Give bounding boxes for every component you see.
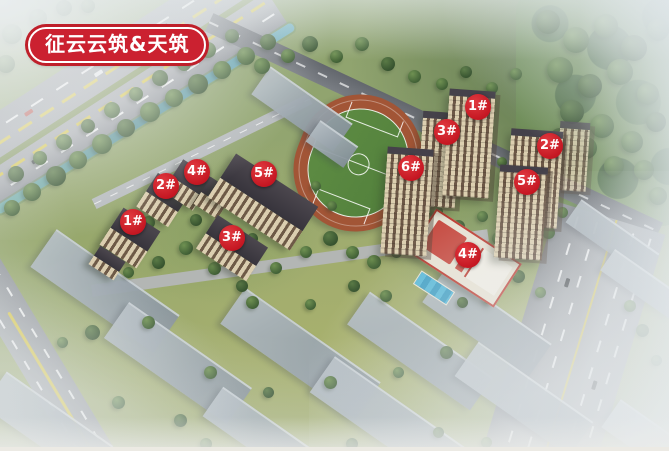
tree-layer: [0, 0, 669, 451]
tree: [23, 183, 41, 201]
building-label-east-6: 6#: [398, 155, 424, 181]
tree: [56, 134, 72, 150]
tree: [56, 0, 72, 16]
tree: [634, 160, 654, 180]
project-name-banner: 征云云筑&天筑: [28, 27, 206, 63]
aerial-site-plan-rendering: 1# 2# 4# 5# 3# 1# 3# 2# 6# 5# 4# 征云云筑&天筑: [0, 0, 669, 451]
tree: [165, 89, 183, 107]
tree: [477, 211, 488, 222]
building-label-west-2: 2#: [153, 173, 179, 199]
tree: [302, 36, 318, 52]
tree: [0, 55, 15, 73]
tree: [594, 14, 618, 38]
tree: [380, 290, 392, 302]
tree: [324, 376, 337, 389]
building-label-west-1: 1#: [120, 209, 146, 235]
tree: [535, 287, 546, 298]
tree: [246, 296, 259, 309]
tree: [590, 114, 614, 138]
tree: [636, 324, 649, 337]
tree: [547, 57, 573, 83]
tree: [129, 87, 143, 101]
tree: [647, 19, 669, 41]
tree: [213, 61, 231, 79]
building-label-west-3: 3#: [219, 225, 245, 251]
tree: [646, 112, 666, 132]
tree: [557, 207, 568, 218]
tree: [440, 346, 453, 359]
tree: [104, 102, 120, 118]
tree: [140, 102, 160, 122]
tree: [367, 255, 381, 269]
tree: [563, 27, 589, 53]
tree: [607, 59, 633, 85]
tree: [69, 151, 87, 169]
building-label-west-4: 4#: [184, 159, 210, 185]
tree: [260, 34, 276, 50]
tree: [81, 0, 95, 13]
tree: [305, 299, 316, 310]
tree: [8, 166, 24, 182]
tree: [300, 246, 312, 258]
tree: [348, 280, 360, 292]
tree: [81, 119, 95, 133]
tree: [604, 156, 624, 176]
tree: [649, 187, 667, 205]
building-label-east-1: 1#: [465, 94, 491, 120]
building-label-west-5: 5#: [251, 161, 277, 187]
tree: [152, 70, 168, 86]
tree: [85, 325, 100, 340]
tree: [33, 151, 47, 165]
tree: [327, 201, 337, 211]
tree: [578, 74, 602, 98]
tree: [225, 29, 239, 43]
tree: [190, 214, 202, 226]
tree: [29, 9, 47, 27]
tree: [355, 37, 369, 51]
tree: [621, 35, 647, 61]
tree: [408, 70, 421, 83]
tree: [254, 58, 270, 74]
building-label-east-3: 3#: [434, 119, 460, 145]
tree: [236, 280, 248, 292]
tree: [270, 262, 282, 274]
tree: [637, 83, 659, 105]
tree: [200, 438, 212, 450]
tree: [346, 438, 358, 450]
tree: [237, 47, 255, 65]
tree: [381, 57, 395, 71]
building-label-east-4: 4#: [455, 242, 481, 268]
tree: [323, 231, 338, 246]
tree: [142, 316, 155, 329]
tree: [460, 66, 472, 78]
tree: [46, 166, 66, 186]
building-label-east-5: 5#: [514, 169, 540, 195]
tree: [393, 367, 404, 378]
tree: [57, 337, 68, 348]
tree: [621, 131, 643, 153]
tree: [457, 297, 468, 308]
tree: [4, 200, 20, 216]
tree: [624, 300, 636, 312]
tree: [174, 414, 187, 427]
tree: [311, 181, 321, 191]
tree: [112, 396, 125, 409]
tree: [263, 387, 274, 398]
tree: [204, 366, 217, 379]
tree: [436, 78, 448, 90]
tree: [188, 74, 208, 94]
tree: [651, 355, 662, 366]
tree: [330, 50, 343, 63]
tree: [481, 437, 492, 448]
tree: [152, 256, 165, 269]
tree: [179, 241, 193, 255]
tree: [281, 49, 295, 63]
tree: [433, 427, 444, 438]
tree: [2, 24, 22, 44]
tree: [510, 68, 522, 80]
tree: [117, 119, 135, 137]
tree: [346, 246, 359, 259]
tree: [92, 134, 112, 154]
building-label-east-2: 2#: [537, 133, 563, 159]
tree: [123, 267, 134, 278]
tree: [536, 10, 560, 34]
